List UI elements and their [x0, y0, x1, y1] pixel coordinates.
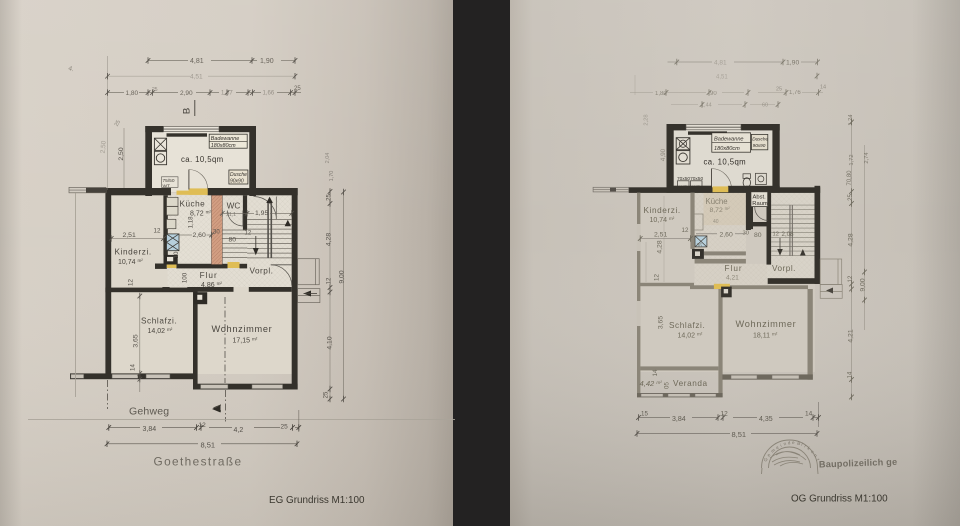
svg-text:12: 12: [654, 274, 661, 281]
svg-text:2,90: 2,90: [180, 90, 193, 97]
svg-text:2,51: 2,51: [123, 232, 136, 239]
svg-text:Flur: Flur: [200, 271, 218, 280]
svg-text:05: 05: [664, 382, 671, 389]
svg-text:2,04: 2,04: [325, 153, 331, 164]
svg-text:4,21: 4,21: [726, 275, 739, 282]
svg-text:Dusche: Dusche: [752, 137, 768, 142]
svg-text:Goethestraße: Goethestraße: [154, 455, 243, 469]
svg-text:1,24: 1,24: [848, 114, 854, 126]
svg-text:4,21: 4,21: [848, 329, 855, 342]
svg-text:21,1: 21,1: [226, 212, 236, 218]
svg-text:90x90: 90x90: [753, 143, 766, 148]
svg-text:180x80cm: 180x80cm: [211, 143, 236, 149]
svg-text:1,76: 1,76: [789, 90, 801, 96]
svg-text:Vorpl.: Vorpl.: [250, 267, 274, 276]
svg-text:1,66: 1,66: [263, 91, 275, 97]
svg-text:Badewanne: Badewanne: [211, 136, 239, 142]
svg-text:Abst.: Abst.: [753, 194, 767, 200]
svg-text:1,37: 1,37: [221, 91, 233, 97]
svg-text:14: 14: [652, 369, 659, 376]
svg-text:12: 12: [199, 422, 207, 429]
svg-text:Schlafzi.: Schlafzi.: [141, 317, 177, 326]
svg-text:2,51: 2,51: [654, 232, 667, 239]
svg-text:40: 40: [713, 219, 719, 225]
svg-text:14: 14: [820, 85, 826, 91]
svg-text:3,65: 3,65: [133, 334, 140, 347]
svg-text:2,50: 2,50: [118, 147, 125, 160]
svg-text:75/50: 75/50: [163, 178, 175, 184]
svg-text:Badewanne: Badewanne: [714, 136, 744, 142]
svg-text:1,72: 1,72: [849, 154, 855, 165]
svg-text:8,51: 8,51: [201, 440, 216, 449]
svg-text:3,84: 3,84: [143, 426, 157, 433]
svg-text:80: 80: [754, 232, 762, 239]
svg-text:100: 100: [182, 272, 189, 283]
svg-text:Kinderzi.: Kinderzi.: [644, 206, 681, 215]
svg-text:14: 14: [805, 411, 813, 418]
svg-text:3,65: 3,65: [658, 316, 665, 329]
svg-text:1,95: 1,95: [255, 210, 268, 217]
svg-text:4,51: 4,51: [716, 75, 728, 81]
svg-text:80: 80: [229, 236, 237, 243]
svg-text:90x90: 90x90: [230, 178, 244, 184]
svg-text:4,28: 4,28: [848, 233, 855, 246]
svg-text:Veranda: Veranda: [673, 379, 708, 388]
svg-text:4,81: 4,81: [714, 60, 727, 67]
svg-text:Wohnzimmer: Wohnzimmer: [736, 319, 797, 329]
svg-text:25: 25: [152, 87, 158, 93]
svg-text:2,28: 2,28: [644, 114, 650, 125]
svg-text:Dusche: Dusche: [230, 172, 247, 178]
svg-text:12: 12: [773, 232, 779, 238]
svg-text:4,28: 4,28: [326, 233, 333, 246]
svg-text:30: 30: [213, 230, 220, 236]
svg-text:2,60: 2,60: [720, 231, 733, 238]
svg-text:Vorpl.: Vorpl.: [772, 264, 796, 273]
svg-text:1,90: 1,90: [786, 60, 799, 67]
svg-text:12: 12: [682, 227, 689, 234]
svg-text:10: 10: [173, 251, 180, 258]
svg-text:60: 60: [762, 103, 768, 109]
svg-text:OG Grundriss M1:100: OG Grundriss M1:100: [791, 494, 888, 505]
svg-text:Kinderzi.: Kinderzi.: [115, 248, 152, 257]
svg-text:WC: WC: [227, 202, 241, 211]
svg-text:1,70: 1,70: [329, 171, 335, 182]
svg-text:1,44: 1,44: [701, 103, 712, 109]
svg-text:4,35: 4,35: [759, 416, 773, 423]
svg-text:180x80cm: 180x80cm: [714, 146, 740, 152]
svg-text:ca. 10,5qm: ca. 10,5qm: [704, 158, 747, 167]
svg-text:25: 25: [776, 87, 782, 93]
svg-text:Küche: Küche: [180, 200, 206, 209]
svg-text:Gehweg: Gehweg: [129, 406, 169, 418]
svg-text:12: 12: [848, 275, 854, 282]
svg-text:2,60: 2,60: [193, 232, 206, 239]
svg-text:2,08: 2,08: [782, 231, 795, 238]
svg-text:3,84: 3,84: [672, 416, 686, 423]
svg-text:e: e: [792, 440, 795, 445]
svg-text:Raum: Raum: [752, 201, 768, 207]
svg-text:4,90: 4,90: [660, 148, 667, 161]
svg-text:2,50: 2,50: [100, 140, 108, 154]
svg-text:25: 25: [281, 424, 289, 431]
svg-text:12: 12: [154, 228, 161, 235]
svg-text:9,00: 9,00: [339, 270, 346, 283]
svg-text:25: 25: [324, 391, 330, 398]
svg-text:Küche: Küche: [706, 197, 728, 206]
svg-text:1,80: 1,80: [655, 91, 667, 97]
svg-text:1,18: 1,18: [187, 216, 194, 229]
svg-text:14: 14: [130, 364, 137, 371]
svg-text:1,90: 1,90: [260, 58, 274, 65]
svg-text:WT: WT: [163, 183, 171, 189]
svg-text:EG Grundriss M1:100: EG Grundriss M1:100: [269, 495, 365, 506]
svg-text:4,81: 4,81: [190, 58, 204, 65]
svg-text:ca. 10,5qm: ca. 10,5qm: [181, 155, 224, 164]
svg-text:4,28: 4,28: [657, 240, 664, 253]
svg-text:2,74: 2,74: [864, 152, 870, 164]
svg-text:Wohnzimmer: Wohnzimmer: [212, 324, 273, 334]
svg-text:12: 12: [327, 277, 333, 284]
svg-text:4,2: 4,2: [234, 427, 244, 434]
svg-text:15: 15: [641, 411, 648, 418]
svg-text:4,51: 4,51: [190, 74, 203, 81]
svg-text:12: 12: [245, 231, 252, 237]
svg-text:14: 14: [848, 371, 854, 378]
svg-text:8,51: 8,51: [732, 430, 747, 439]
svg-text:25: 25: [327, 194, 333, 201]
svg-text:70,80: 70,80: [847, 170, 853, 186]
svg-text:12: 12: [721, 411, 729, 418]
svg-text:1,80: 1,80: [126, 90, 139, 97]
svg-text:12: 12: [128, 279, 135, 286]
svg-text:25: 25: [848, 194, 854, 201]
svg-text:Schlafzi.: Schlafzi.: [669, 321, 705, 330]
svg-text:36: 36: [697, 243, 703, 249]
svg-text:Flur: Flur: [725, 264, 743, 273]
svg-text:B: B: [182, 108, 193, 114]
svg-text:9,00: 9,00: [860, 278, 867, 291]
svg-text:90: 90: [710, 91, 717, 97]
svg-text:25: 25: [294, 86, 301, 92]
svg-text:4,10: 4,10: [327, 336, 334, 349]
